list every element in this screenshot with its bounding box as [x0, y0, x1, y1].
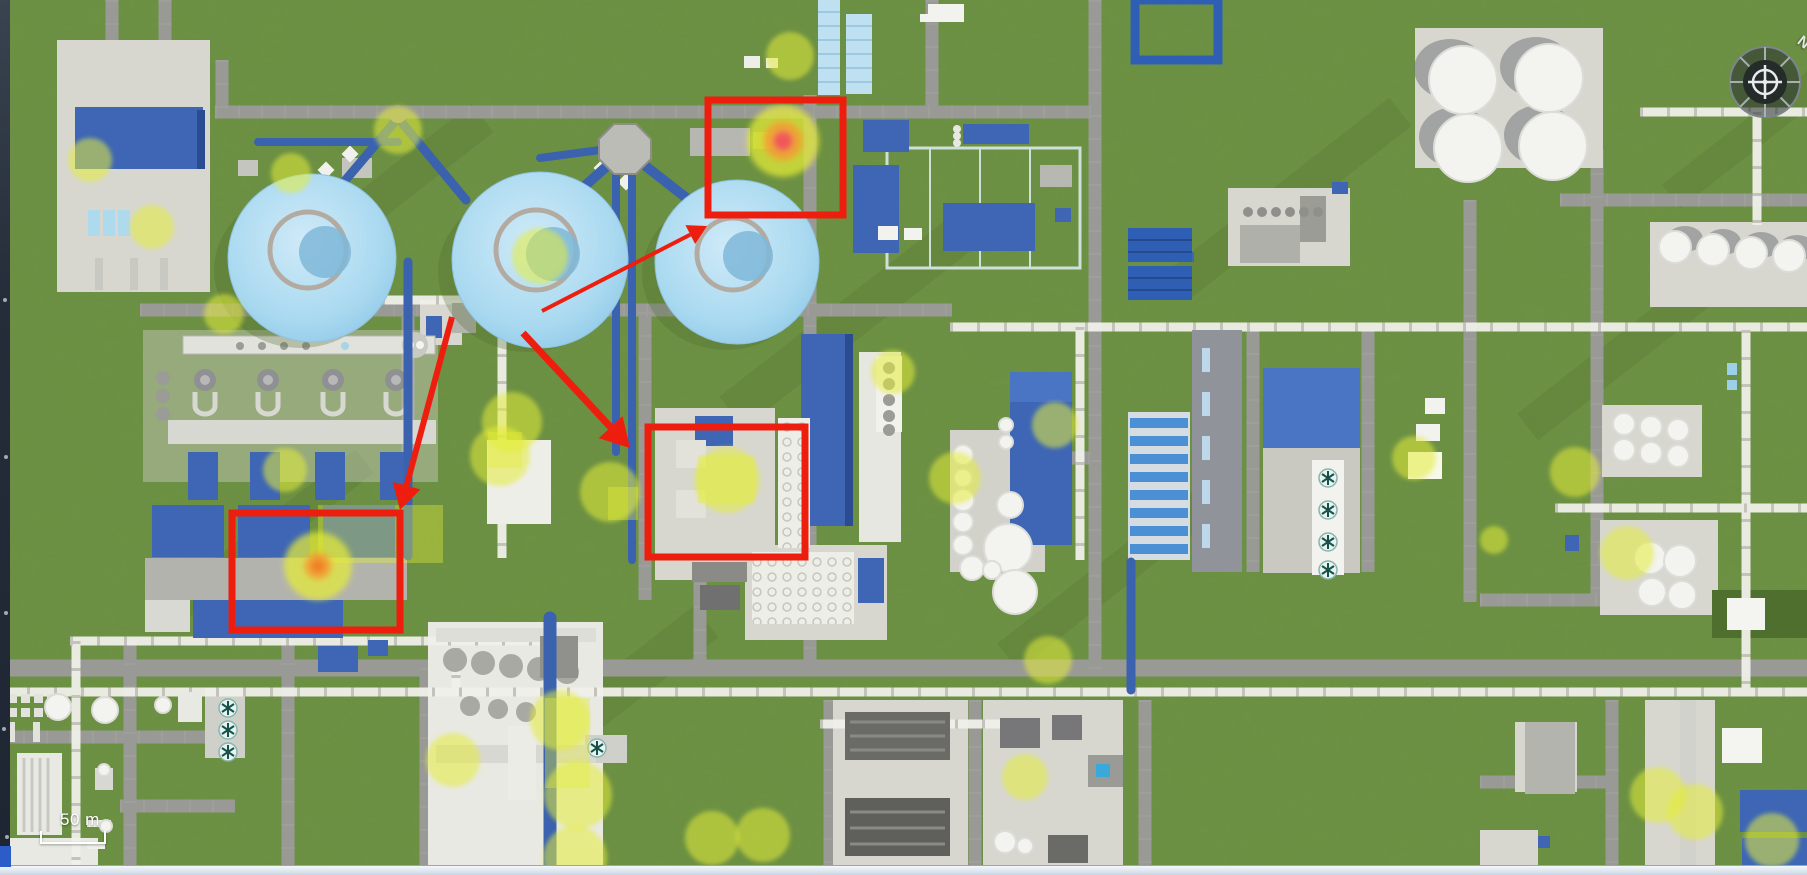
alarm-marker[interactable]	[1550, 447, 1600, 497]
alarm-marker[interactable]	[271, 153, 311, 193]
alarm-marker[interactable]	[694, 447, 760, 513]
alarm-marker[interactable]	[512, 228, 568, 284]
alarm-marker[interactable]	[1032, 402, 1078, 448]
heatmap-hotspot[interactable]	[284, 532, 352, 600]
scale-label: 50 m	[60, 810, 106, 830]
alarm-marker[interactable]	[736, 808, 790, 862]
alarm-marker[interactable]	[1600, 526, 1654, 580]
scale-bracket	[40, 831, 106, 844]
bokeh-dot	[2, 727, 6, 731]
alarm-marker[interactable]	[374, 106, 422, 154]
taskbar-chip	[0, 846, 11, 867]
alarm-marker[interactable]	[426, 733, 480, 787]
scale-bar: 50 m	[40, 810, 106, 844]
compass-widget[interactable]: N	[1726, 43, 1804, 121]
pipe-manifold-octagon	[599, 124, 651, 174]
heatmap-hotspot[interactable]	[747, 105, 819, 177]
alarm-marker[interactable]	[929, 452, 981, 504]
alarm-marker[interactable]	[68, 138, 112, 182]
alarm-marker[interactable]	[1392, 436, 1436, 480]
alarm-marker[interactable]	[1002, 754, 1048, 800]
alarm-marker[interactable]	[544, 761, 612, 829]
alarm-marker[interactable]	[1667, 784, 1723, 840]
bokeh-dot	[5, 835, 9, 839]
bokeh-dot	[4, 611, 8, 615]
map-canvas[interactable]	[0, 0, 1807, 875]
alarm-marker[interactable]	[130, 205, 174, 249]
alarm-marker[interactable]	[470, 426, 530, 486]
alarm-marker[interactable]	[766, 32, 814, 80]
alarm-marker[interactable]	[263, 448, 307, 492]
background-window-strip	[0, 0, 10, 866]
alarm-marker[interactable]	[1745, 813, 1799, 867]
bokeh-dot	[3, 298, 7, 302]
alarm-marker[interactable]	[685, 811, 739, 865]
alarm-marker[interactable]	[871, 350, 915, 394]
alarm-marker[interactable]	[530, 690, 590, 750]
alarm-marker[interactable]	[1024, 636, 1072, 684]
compass-icon	[1726, 43, 1804, 121]
window-bottom-edge	[0, 865, 1807, 875]
alarm-marker[interactable]	[204, 294, 244, 334]
alarm-marker[interactable]	[580, 462, 640, 522]
map-application-window: 50 m N	[0, 0, 1807, 875]
alarm-marker[interactable]	[1480, 526, 1508, 554]
bokeh-dot	[4, 455, 8, 459]
